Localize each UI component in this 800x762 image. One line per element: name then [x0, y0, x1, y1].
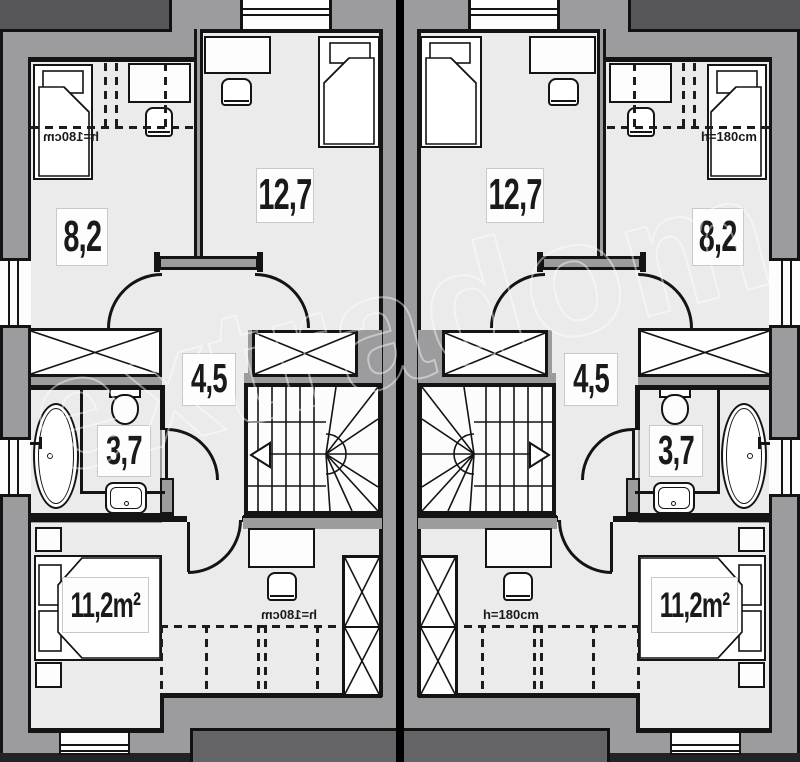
roof-dark-corner	[628, 0, 800, 32]
toilet-bowl-icon	[661, 394, 689, 425]
wall-left-exterior	[28, 57, 31, 733]
window-icon	[59, 733, 130, 755]
staircase	[418, 383, 556, 515]
nightstand-icon	[35, 527, 62, 552]
wall-bath-right-upper	[160, 385, 165, 430]
bathtub-icon	[33, 403, 79, 509]
ceiling-height-dashed-line	[534, 625, 537, 693]
room-area-label: 4,5	[564, 353, 618, 406]
door-jamb-right	[537, 252, 543, 272]
ceiling-height-dashed-line	[160, 625, 341, 628]
ceiling-height-dashed-line	[541, 625, 544, 693]
bed-icon	[707, 64, 767, 180]
roof-dark-corner	[0, 0, 172, 32]
tall-wardrobe-icon	[342, 555, 382, 697]
wardrobe-filler	[418, 330, 445, 377]
wall-partition-bedrooms	[597, 29, 606, 258]
bed-icon	[33, 64, 93, 180]
wardrobe-nook-floor	[418, 528, 460, 558]
desk-icon	[204, 36, 271, 74]
wardrobe-nook-floor	[340, 528, 382, 558]
wall-top-small-bedroom	[602, 57, 772, 62]
desk-icon	[485, 528, 552, 568]
room-area-label: 12,7	[256, 168, 314, 223]
chair-icon	[548, 78, 579, 106]
wall-partition-bedrooms	[194, 29, 203, 258]
ceiling-height-dashed-line	[257, 625, 260, 693]
ceiling-height-dashed-line	[164, 63, 167, 127]
ceiling-height-dashed-line	[316, 625, 319, 693]
ceiling-height-dashed-line	[160, 625, 163, 693]
ceiling-height-dashed-line	[683, 63, 686, 127]
unit-left: h=180cm h=180cm	[0, 0, 400, 762]
wall-bath-top	[28, 385, 165, 390]
ceiling-height-dashed-line	[638, 625, 641, 693]
door-jamb-left	[154, 252, 160, 272]
window-icon	[240, 0, 332, 29]
chair-icon	[503, 572, 533, 601]
room-area-label: 3,7	[649, 425, 703, 477]
floor-plan: h=180cm h=180cm	[0, 0, 800, 762]
room-area-label: 12,7	[486, 168, 544, 223]
unit-right: h=180cm h=180cm	[400, 0, 800, 762]
ceiling-height-dashed-line	[264, 625, 267, 693]
ceiling-height-note: h=180cm	[255, 607, 323, 622]
wall-left-exterior	[769, 57, 772, 733]
door-jamb-right	[257, 252, 263, 272]
window-icon	[769, 258, 800, 328]
wall-door-header	[541, 256, 642, 270]
tall-wardrobe-icon	[418, 555, 458, 697]
stair-bottom-band	[243, 515, 382, 529]
nightstand-icon	[738, 662, 765, 688]
window-icon	[468, 0, 560, 29]
bed-icon	[420, 36, 482, 148]
wall-top-large-bedroom	[200, 29, 382, 33]
room-area-label: 11,2m²	[651, 577, 738, 633]
terrace-dark-block	[400, 728, 610, 762]
chair-icon	[221, 78, 252, 106]
window-icon	[0, 258, 31, 328]
ceiling-height-dashed-line	[482, 625, 485, 693]
tub-faucet-icon	[758, 437, 761, 449]
ceiling-height-dashed-line	[115, 63, 118, 127]
wall-bath-right-upper	[635, 385, 640, 430]
toilet-bowl-icon	[111, 394, 139, 425]
wardrobe-filler	[355, 330, 382, 377]
bed-icon	[318, 36, 380, 148]
party-expansion-joint	[400, 0, 404, 762]
room-area-label: 3,7	[97, 425, 151, 477]
ceiling-height-dashed-line	[593, 625, 596, 693]
terrace-dark-block	[190, 728, 400, 762]
room-area-label: 11,2m²	[62, 577, 149, 633]
ceiling-height-dashed-line	[459, 625, 640, 628]
bathtub-icon	[721, 403, 767, 509]
ceiling-height-note: h=180cm	[36, 129, 106, 144]
wall-top-large-bedroom	[418, 29, 600, 33]
room-area-label: 4,5	[182, 353, 236, 406]
stairs-icon	[248, 387, 378, 511]
wall-bath-top	[635, 385, 772, 390]
door-jamb-left	[640, 252, 646, 272]
desk-icon	[128, 63, 191, 103]
wall-top-small-bedroom	[28, 57, 198, 62]
window-icon	[0, 437, 31, 497]
tub-enclosure-line	[80, 390, 83, 491]
staircase	[244, 383, 382, 515]
ceiling-height-dashed-line	[634, 63, 637, 127]
chair-icon	[267, 572, 297, 601]
desk-icon	[529, 36, 596, 74]
nightstand-icon	[35, 662, 62, 688]
tub-enclosure-line	[717, 390, 720, 491]
stair-bottom-band	[418, 515, 557, 529]
chair-icon	[145, 107, 173, 137]
window-icon	[670, 733, 741, 755]
left-edge-line	[0, 32, 3, 753]
ceiling-height-dashed-line	[104, 63, 107, 127]
room-area-label: 8,2	[692, 208, 744, 266]
ceiling-height-note: h=180cm	[477, 607, 545, 622]
ceiling-height-dashed-line	[694, 63, 697, 127]
tub-drain-icon	[47, 453, 53, 459]
wall-bedroom-step	[636, 693, 640, 733]
desk-icon	[248, 528, 315, 568]
ceiling-height-note: h=180cm	[694, 129, 764, 144]
ceiling-height-dashed-line	[205, 625, 208, 693]
stairs-icon	[422, 387, 552, 511]
tub-faucet-icon	[39, 437, 42, 449]
wall-door-header	[158, 256, 259, 270]
chair-icon	[627, 107, 655, 137]
wall-bedroom-step	[160, 693, 164, 733]
desk-icon	[609, 63, 672, 103]
tub-drain-icon	[747, 453, 753, 459]
room-area-label: 8,2	[56, 208, 108, 266]
window-icon	[769, 437, 800, 497]
nightstand-icon	[738, 527, 765, 552]
